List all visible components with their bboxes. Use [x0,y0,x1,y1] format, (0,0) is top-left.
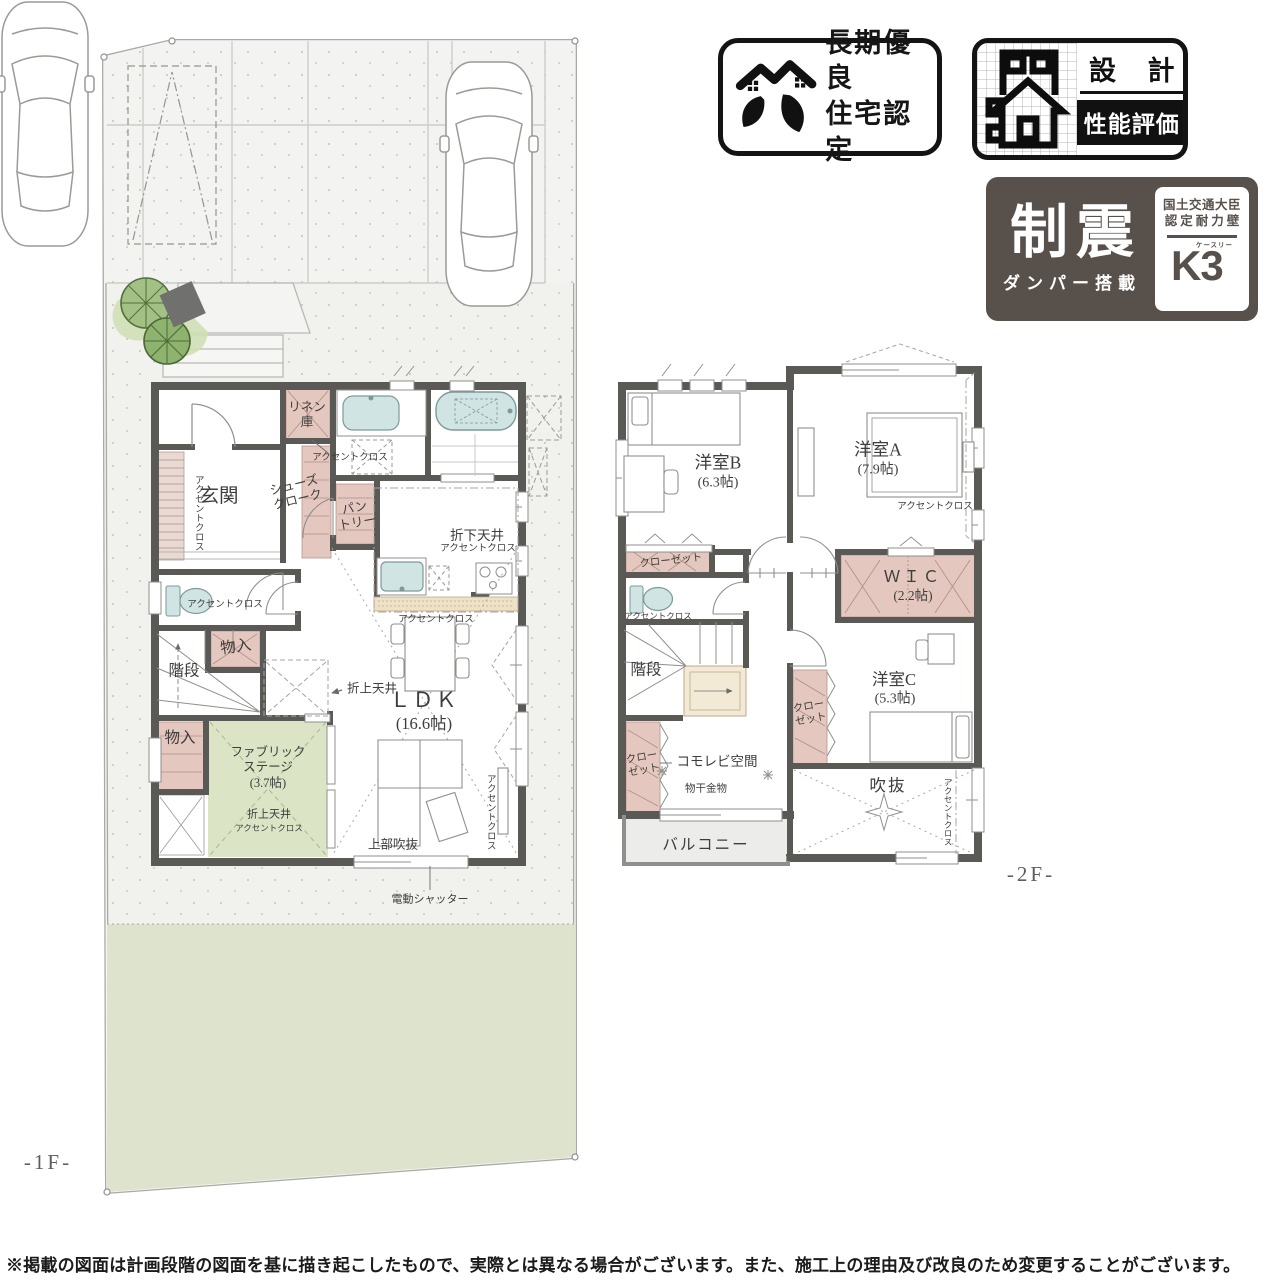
badge-long-term-housing: 長期優良 住宅認定 [718,38,942,156]
badge-design-text: 設 計 性能評価 [1077,43,1188,155]
design-rule [1080,91,1183,94]
cert-rule [1167,235,1237,238]
balcony-floor [622,815,790,866]
cert-line1: 国土交通大臣 [1163,198,1241,214]
bed-icon-room-b [628,393,740,445]
seismic-damper-text: 制震 ダンパー搭載 [996,204,1148,294]
toilet-icon [166,586,212,616]
building-1f [149,366,561,890]
design-label: 設 計 [1077,49,1187,88]
bed-icon-room-c [870,712,972,762]
performance-evaluation-label: 性能評価 [1077,100,1187,145]
badge-design-evaluation: 設 計 性能評価 [972,38,1188,160]
washbasin-icon [337,390,426,436]
seismic-label: 制震 [996,204,1148,262]
footer-disclaimer: ※掲載の図面は計画段階の図面を基に描き起こしたもので、実際とは異なる場合がござい… [6,1251,1278,1276]
shelf-icon-room-a [798,428,814,496]
design-evaluation-logo-icon [977,43,1077,155]
k3-certification-box: 国土交通大臣 認定耐力壁 ケースリー K3 [1155,187,1249,311]
cert-line2: 認定耐力壁 [1162,214,1243,230]
k3-logo: K3 [1171,246,1233,286]
car-icon [0,2,94,246]
floorplan-sheet: リネン 庫 アクセントクロス 玄関 シューズ クローク アクセントクロス パン … [0,0,1280,1280]
badge-seismic-damper: 制震 ダンパー搭載 国土交通大臣 認定耐力壁 ケースリー K3 [986,177,1258,321]
long-term-housing-logo-icon [735,53,817,141]
badge-long-term-text: 長期優良 住宅認定 [825,26,929,169]
bed-icon-room-a [867,413,974,497]
toilet-icon-2f [630,586,673,613]
building-2f [616,344,984,866]
damper-label: ダンパー搭載 [996,269,1148,294]
fabric-stage-floor [208,720,328,857]
